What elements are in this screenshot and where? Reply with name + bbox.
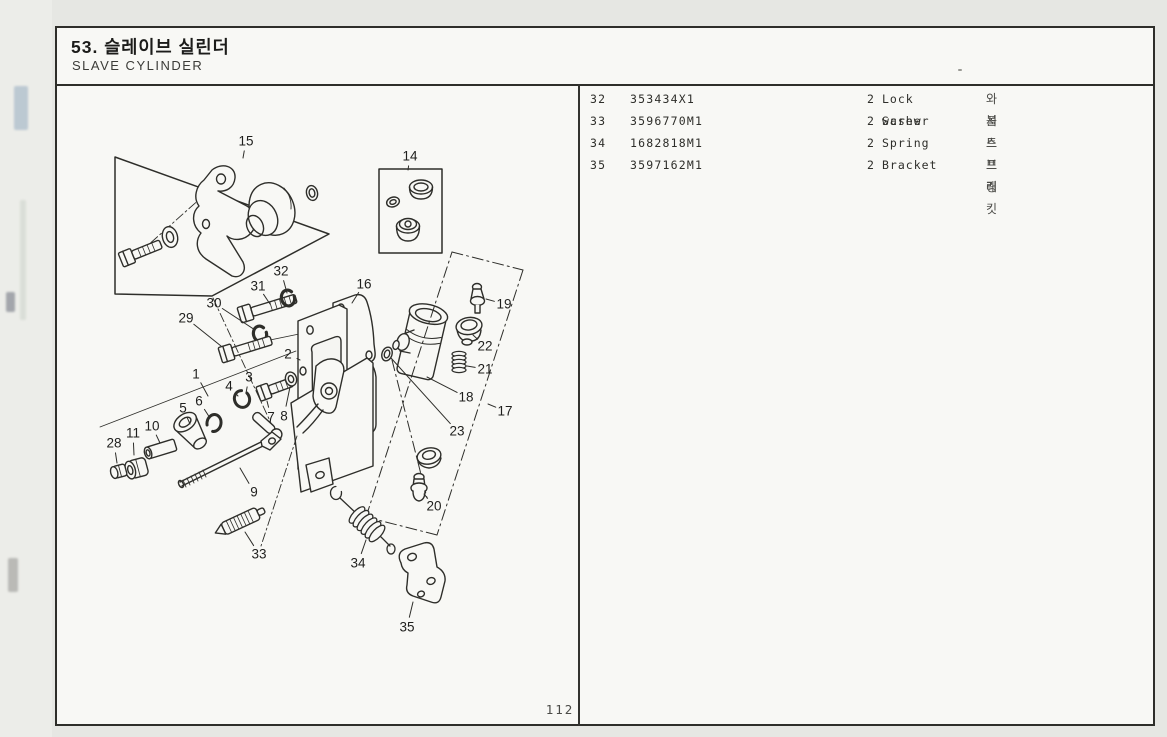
leader-line-28 [115,453,117,463]
part-label-21: 21 [477,362,492,377]
dashed-group-17 [366,252,523,535]
seal-ring [385,195,400,208]
part-label-9: 9 [250,485,258,500]
nut-28 [109,464,127,480]
leader-line-15 [243,151,244,158]
piston-cup [397,219,420,242]
cup-seal [410,180,433,199]
part-label-34: 34 [350,556,366,571]
spring-21 [452,351,466,372]
boxed-assembly-15 [115,157,329,296]
part-label-11: 11 [126,426,140,441]
return-spring-34 [331,487,396,555]
part-label-32: 32 [273,264,288,279]
plug-20 [411,474,427,502]
leader-line-34 [361,540,366,554]
leader-line-33 [245,532,254,546]
part-label-6: 6 [195,394,203,409]
boxed-repair-kit-14 [379,169,442,253]
leader-line-8 [286,387,290,406]
leader-line-29 [194,324,221,346]
part-label-15: 15 [238,134,253,149]
part-label-7: 7 [267,410,275,425]
part-label-10: 10 [144,419,159,434]
part-label-33: 33 [251,547,266,562]
washer [160,225,180,249]
leader-line-17 [488,404,496,407]
adjuster-screw-33 [213,504,267,539]
scanned-manual-page: 53. 슬레이브 실린더 SLAVE CYLINDER 32 353434X1 … [0,0,1167,737]
bracket-35 [399,543,445,603]
snap-ring-3-4 [232,388,252,409]
leader-line-19 [486,299,494,301]
part-label-23: 23 [449,424,464,439]
part-label-3: 3 [245,370,253,385]
clip-6 [206,413,223,432]
part-label-5: 5 [179,401,187,416]
grommet-11 [123,457,149,480]
part-label-16: 16 [356,277,371,292]
leader-line-6 [204,409,210,418]
exploded-parts-diagram: 1514323130291621345678101128933343520231… [0,0,1167,737]
part-label-2: 2 [284,347,292,362]
boot-piston [241,175,303,242]
part-label-35: 35 [399,620,414,635]
part-label-4: 4 [225,379,233,394]
o-ring [305,185,319,202]
part-label-14: 14 [402,149,418,164]
part-label-8: 8 [280,409,288,424]
leader-line-21 [467,366,475,367]
part-label-17: 17 [497,404,512,419]
bolt [118,237,163,267]
part-label-22: 22 [477,339,492,354]
part-label-1: 1 [192,367,200,382]
leader-line-14 [408,166,409,170]
leader-line-18 [427,377,457,392]
bolt-29 [218,332,273,363]
part-label-29: 29 [178,311,193,326]
leader-line-7 [267,401,269,407]
leader-line-10 [156,435,160,443]
part-label-31: 31 [250,279,265,294]
retainer-ring-20 [416,446,443,468]
leader-line-11 [133,443,134,455]
housing-assembly [291,295,376,492]
bleeder-screw-19 [471,284,485,314]
part-label-18: 18 [458,390,473,405]
leader-line-9 [240,468,249,483]
slave-cylinder-18 [380,300,450,380]
pushrod-9 [177,432,281,488]
part-label-20: 20 [426,499,441,514]
part-label-28: 28 [106,436,121,451]
part-label-19: 19 [496,297,511,312]
leader-line-35 [409,602,413,617]
part-label-30: 30 [206,296,221,311]
